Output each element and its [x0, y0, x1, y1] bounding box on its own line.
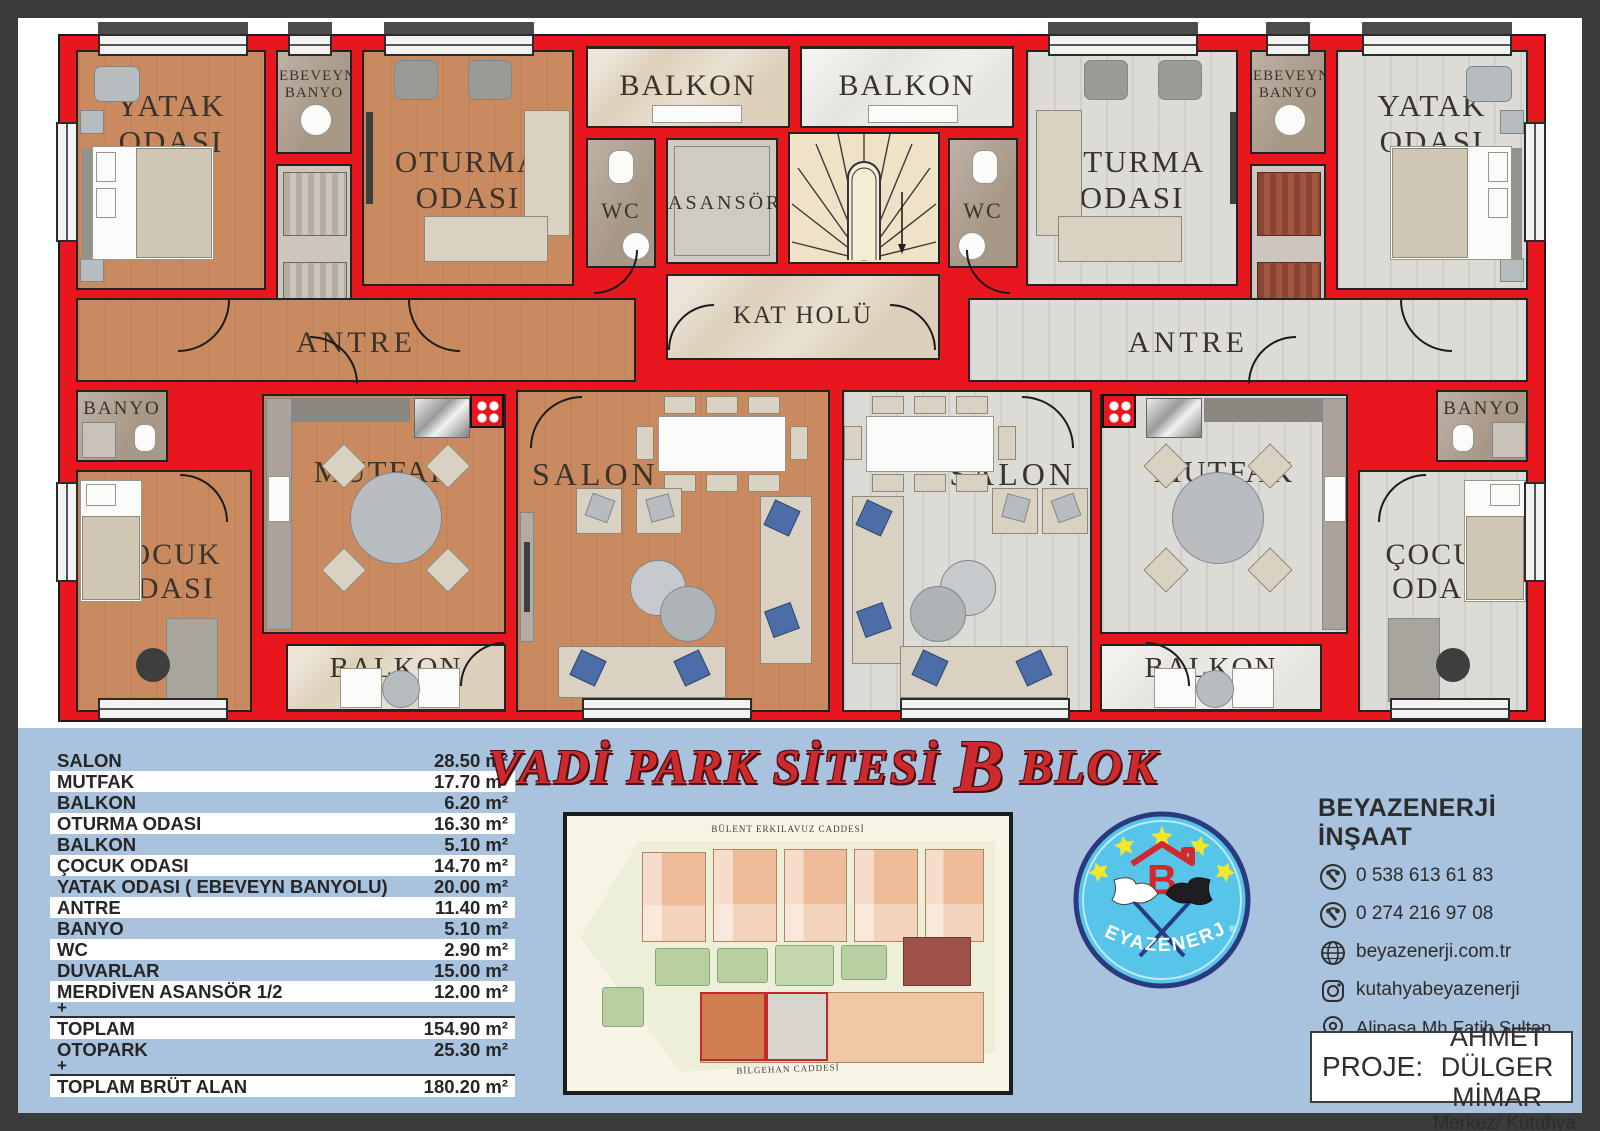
proje-label: PROJE:	[1312, 1051, 1423, 1083]
room-banyo-right: BANYO	[1436, 390, 1528, 462]
room-label: BALKON	[588, 69, 788, 103]
stove-icon	[470, 394, 504, 428]
balcony-chair	[418, 668, 460, 708]
room-wc-left: WC	[586, 138, 656, 268]
chair	[706, 396, 738, 414]
chair	[956, 396, 988, 414]
armchair	[1084, 60, 1128, 100]
chair	[636, 426, 654, 460]
window	[384, 34, 534, 56]
room-wc-right: WC	[948, 138, 1018, 268]
dining-table	[866, 416, 994, 472]
desk-chair	[136, 648, 170, 682]
site-park	[841, 945, 887, 980]
balcony-top-right: BALKON	[800, 46, 1014, 128]
room-ebeveyn-banyo-right: EBEVEYN BANYO	[1250, 50, 1326, 154]
room-label: BANYO	[1438, 398, 1526, 420]
window-lintel	[1266, 22, 1310, 34]
balcony-table	[1196, 670, 1234, 708]
sofa	[424, 216, 548, 262]
room-label: WC	[950, 198, 1016, 224]
balcony-chair	[1232, 668, 1274, 708]
chair	[872, 396, 904, 414]
phone-icon	[1318, 862, 1348, 892]
chair	[1247, 547, 1292, 592]
contact-item: 0 274 216 97 08	[1318, 900, 1576, 930]
floor-plan-area: YATAK ODASI EBEVEYN BANYO OTURMA ODASI	[18, 18, 1582, 728]
window	[1266, 34, 1310, 56]
chair	[748, 396, 780, 414]
balcony-table	[382, 670, 420, 708]
toilet	[608, 150, 634, 184]
blanket	[82, 516, 140, 600]
chair	[956, 474, 988, 492]
tv-unit	[366, 112, 373, 204]
blanket	[1466, 516, 1524, 600]
room-label: EBEVEYN BANYO	[1252, 68, 1324, 102]
table-row: BALKON5.10 m²	[50, 834, 515, 855]
site-plan: BÜLENT ERKILAVUZ CADDESİ BİLGEHAN CADDES…	[563, 812, 1013, 1095]
site-park	[775, 945, 834, 986]
contact-item: beyazenerji.com.tr	[1318, 938, 1576, 968]
window	[56, 122, 78, 242]
blanket	[1392, 148, 1468, 258]
table-row: BALKON6.20 m²	[50, 792, 515, 813]
toilet	[1452, 424, 1474, 452]
coffee-table	[660, 586, 716, 642]
pillow	[96, 188, 116, 218]
bench	[652, 105, 742, 123]
table-sum-divider: +	[50, 1002, 515, 1018]
blanket	[136, 148, 212, 258]
project-title: VADİ PARK SİTESİ B BLOK	[488, 738, 1148, 795]
table-row: OTURMA ODASI16.30 m²	[50, 813, 515, 834]
architect-name: AHMET DÜLGER MİMAR	[1423, 1022, 1571, 1112]
phone-icon	[1318, 900, 1348, 930]
room-oturma-odasi-left: OTURMA ODASI	[362, 50, 574, 286]
room-oturma-odasi-right: OTURMA ODASI	[1026, 50, 1238, 286]
window-lintel	[384, 22, 534, 34]
window	[582, 698, 752, 720]
kitchen-counter	[1204, 398, 1322, 422]
dining-table	[658, 416, 786, 472]
window	[1362, 34, 1512, 56]
table-row: SALON28.50 m²	[50, 750, 515, 771]
door-arc	[966, 250, 1010, 294]
room-mutfak-left: MUTFAK	[262, 394, 506, 634]
chair	[872, 474, 904, 492]
table-row: YATAK ODASI ( EBEVEYN BANYOLU)20.00 m²	[50, 876, 515, 897]
table-row: BANYO5.10 m²	[50, 918, 515, 939]
site-building	[642, 852, 706, 942]
bed-headboard	[82, 148, 92, 260]
chair	[664, 396, 696, 414]
table-row: OTOPARK25.30 m²	[50, 1039, 515, 1060]
shower	[82, 422, 116, 458]
stairs-icon	[790, 134, 938, 262]
table-row: ÇOCUK ODASI14.70 m²	[50, 855, 515, 876]
kitchen-sink	[268, 476, 290, 522]
window	[900, 698, 1070, 720]
balcony-top-left: BALKON	[586, 46, 790, 128]
street-name-top: BÜLENT ERKILAVUZ CADDESİ	[567, 824, 1009, 834]
pillow	[1488, 152, 1508, 182]
bench	[868, 105, 958, 123]
room-label: EBEVEYN BANYO	[278, 68, 350, 102]
table-row: MERDİVEN ASANSÖR 1/212.00 m²	[50, 981, 515, 1002]
nightstand	[1500, 258, 1524, 282]
room-label: ASANSÖR	[668, 192, 776, 215]
nightstand	[1500, 110, 1524, 134]
chair	[914, 474, 946, 492]
fridge	[1146, 398, 1202, 438]
sink	[300, 104, 332, 136]
site-building	[784, 849, 848, 942]
window	[1390, 698, 1510, 720]
table-row: TOPLAM154.90 m²	[50, 1018, 515, 1039]
info-panel: SALON28.50 m² MUTFAK17.70 m² BALKON6.20 …	[18, 728, 1582, 1113]
pillow	[1488, 188, 1508, 218]
window-lintel	[288, 22, 332, 34]
site-building	[854, 849, 918, 942]
balcony-chair	[340, 668, 382, 708]
coffee-table	[910, 586, 966, 642]
site-court	[903, 937, 971, 986]
armchair	[1158, 60, 1202, 100]
wardrobe	[1257, 172, 1321, 236]
chair	[844, 426, 862, 460]
site-building	[713, 849, 777, 942]
contact-city: Merkez/ Kütahya	[1318, 1113, 1576, 1131]
site-b-block-highlight	[766, 992, 828, 1061]
company-name: BEYAZENERJİ İNŞAAT	[1318, 794, 1576, 852]
dining-table-round	[350, 472, 442, 564]
room-yatak-odasi-left: YATAK ODASI	[76, 50, 266, 290]
window	[56, 482, 78, 582]
window-lintel	[98, 22, 248, 34]
table-row: DUVARLAR15.00 m²	[50, 960, 515, 981]
staircase	[788, 132, 940, 264]
toilet	[134, 424, 156, 452]
chair	[998, 426, 1016, 460]
desk-chair	[1436, 648, 1470, 682]
armchair	[468, 60, 512, 100]
window	[98, 698, 228, 720]
nightstand	[80, 110, 104, 134]
globe-icon	[1318, 938, 1348, 968]
door-arc	[594, 250, 638, 294]
shower	[1492, 422, 1526, 458]
balcony-bottom-right: BALKON	[1100, 644, 1322, 712]
armchair	[1466, 66, 1512, 102]
nightstand	[80, 258, 104, 282]
floor-plan: YATAK ODASI EBEVEYN BANYO OTURMA ODASI	[58, 34, 1546, 722]
wardrobe	[283, 172, 347, 236]
pillow	[86, 484, 116, 506]
site-park	[655, 948, 710, 986]
tv	[524, 542, 530, 612]
window-lintel	[1048, 22, 1198, 34]
contact-item: kutahyabeyazenerji	[1318, 976, 1576, 1006]
window	[288, 34, 332, 56]
table-sum-divider: +	[50, 1060, 515, 1076]
armchair	[394, 60, 438, 100]
site-park	[717, 948, 768, 983]
fridge	[414, 398, 470, 438]
table-row: ANTRE11.40 m²	[50, 897, 515, 918]
site-building	[925, 849, 984, 942]
window	[1048, 34, 1198, 56]
chair	[706, 474, 738, 492]
chair	[790, 426, 808, 460]
table-row: TOPLAM BRÜT ALAN180.20 m²	[50, 1076, 515, 1097]
room-label: WC	[588, 198, 654, 224]
company-logo: B BEYAZENERJİ ®	[1072, 810, 1252, 990]
room-ebeveyn-banyo-left: EBEVEYN BANYO	[276, 50, 352, 154]
toilet	[972, 150, 998, 184]
room-label: BALKON	[802, 69, 1012, 103]
kitchen-sink	[1324, 476, 1346, 522]
architect-box: PROJE: AHMET DÜLGER MİMAR	[1310, 1031, 1573, 1103]
chair	[321, 547, 366, 592]
poster: YATAK ODASI EBEVEYN BANYO OTURMA ODASI	[0, 0, 1600, 1131]
dining-table-round	[1172, 472, 1264, 564]
chair	[1143, 547, 1188, 592]
window	[1524, 482, 1546, 582]
room-label: ANTRE	[78, 326, 634, 360]
room-yatak-odasi-right: YATAK ODASI	[1336, 50, 1528, 290]
site-b-block-highlight	[700, 992, 766, 1061]
chair	[425, 547, 470, 592]
table-row: MUTFAK17.70 m²	[50, 771, 515, 792]
room-asansor: ASANSÖR	[666, 138, 778, 264]
area-table: SALON28.50 m² MUTFAK17.70 m² BALKON6.20 …	[50, 750, 515, 1097]
stove-icon	[1102, 394, 1136, 428]
room-label: BANYO	[78, 398, 166, 420]
armchair	[94, 66, 140, 102]
window	[1524, 122, 1546, 242]
room-banyo-left: BANYO	[76, 390, 168, 462]
logo-registered-mark: ®	[1229, 924, 1236, 934]
bed-headboard	[1512, 148, 1522, 260]
sofa	[1058, 216, 1182, 262]
instagram-icon	[1318, 976, 1348, 1006]
chair	[748, 474, 780, 492]
site-park	[602, 987, 644, 1028]
table-row: WC2.90 m²	[50, 939, 515, 960]
desk	[166, 618, 218, 702]
desk	[1388, 618, 1440, 702]
kitchen-counter	[292, 398, 410, 422]
chair	[914, 396, 946, 414]
room-mutfak-right: MUTFAK	[1100, 394, 1348, 634]
window-lintel	[1362, 22, 1512, 34]
sink	[1274, 104, 1306, 136]
tv-unit	[1230, 112, 1237, 204]
pillow	[96, 152, 116, 182]
window	[98, 34, 248, 56]
pillow	[1490, 484, 1520, 506]
contact-item: 0 538 613 61 83	[1318, 862, 1576, 892]
